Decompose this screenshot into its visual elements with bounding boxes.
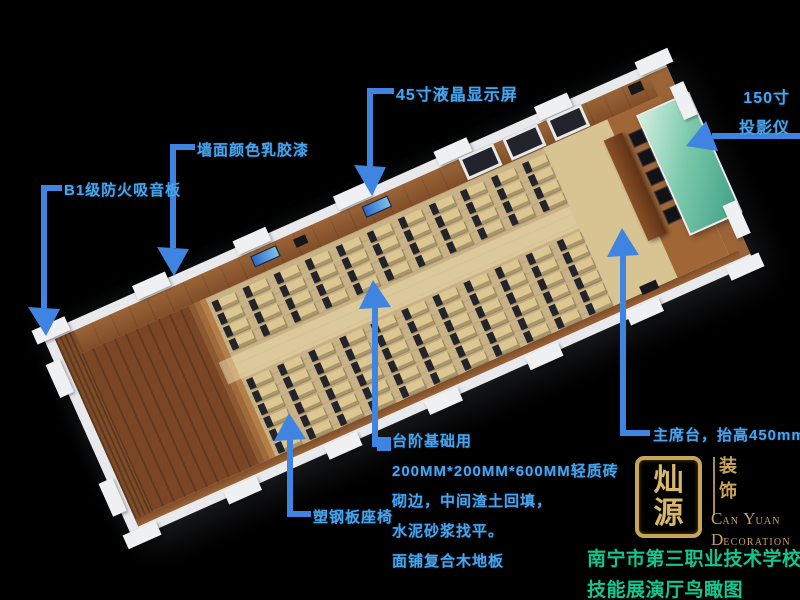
logo-side-char: 装 xyxy=(719,454,737,479)
logo-english-line1: CAN YUAN xyxy=(711,510,791,531)
steps-note-line: 水泥砂浆找平。 xyxy=(392,517,619,547)
lcd-connector xyxy=(370,91,394,166)
drawing-title: 南宁市第三职业技术学校 技能展演厅鸟瞰图 xyxy=(587,544,800,600)
logo-letters: AN xyxy=(722,516,739,527)
logo-letter: Y xyxy=(743,509,755,528)
annotation-projector-line2: 投影仪 xyxy=(738,114,790,144)
seal-char-top: 灿 xyxy=(654,464,684,497)
annotation-projector-line1: 150寸 xyxy=(738,84,790,114)
drawing-title-line2: 技能展演厅鸟瞰图 xyxy=(587,575,800,600)
logo-divider xyxy=(713,457,715,515)
steps-note-bullet xyxy=(377,437,391,451)
steps-note-line: 台阶基础用 xyxy=(392,427,619,457)
logo-letter: C xyxy=(711,509,722,528)
annotation-seat: 塑钢板座椅 xyxy=(313,506,393,527)
annotation-lcd-screen: 45寸液晶显示屏 xyxy=(396,81,518,105)
poster-canvas: 45寸液晶显示屏 150寸 投影仪 墙面颜色乳胶漆 B1级防火吸音板 台阶基础用… xyxy=(0,0,800,600)
annotation-stage: 主席台，抬高450mm xyxy=(653,424,800,445)
seal-char-bottom: 源 xyxy=(654,497,684,530)
drawing-title-line1: 南宁市第三职业技术学校 xyxy=(587,544,800,575)
logo-side-mark: 装 饰 xyxy=(719,454,737,504)
wall-pilaster xyxy=(123,521,162,549)
steps-note-line: 面铺复合木地板 xyxy=(392,547,619,577)
logo-side-char: 饰 xyxy=(719,479,737,504)
steps-note-line: 200MM*200MM*600MM轻质砖 xyxy=(392,457,619,487)
annotation-wall-paint: 墙面颜色乳胶漆 xyxy=(197,139,309,160)
acoustic-connector xyxy=(44,188,62,308)
logo-letters: UAN xyxy=(755,516,780,527)
steps-note-line: 砌边，中间渣土回填， xyxy=(392,487,619,517)
annotation-steps-note: 台阶基础用 200MM*200MM*600MM轻质砖 砌边，中间渣土回填， 水泥… xyxy=(392,427,619,577)
annotation-projector: 150寸 投影仪 xyxy=(738,84,790,144)
annotation-acoustic-panel: B1级防火吸音板 xyxy=(64,179,181,200)
canyuan-seal-logo: 灿 源 xyxy=(635,456,702,538)
